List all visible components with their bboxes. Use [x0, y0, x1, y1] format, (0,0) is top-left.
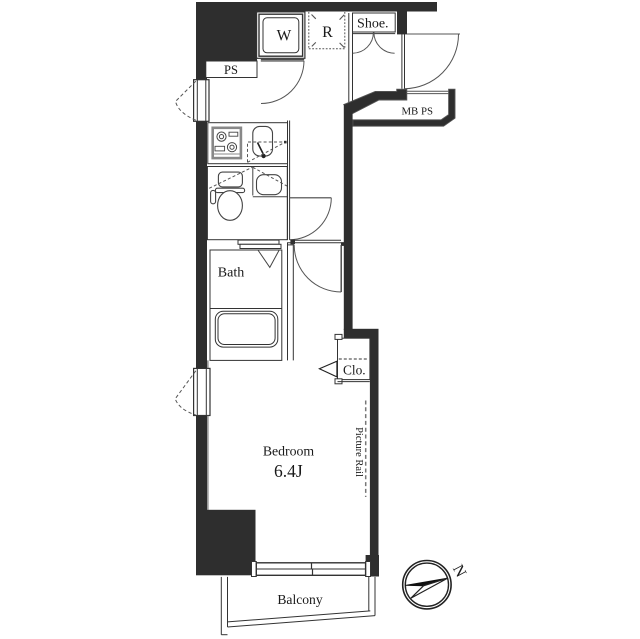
svg-text:Picture Rail: Picture Rail	[353, 427, 364, 477]
svg-text:PS: PS	[224, 63, 238, 77]
svg-text:6.4J: 6.4J	[274, 461, 303, 481]
svg-text:Clo.: Clo.	[343, 363, 366, 378]
svg-text:MB PS: MB PS	[401, 105, 433, 117]
svg-text:Bedroom: Bedroom	[263, 444, 315, 459]
svg-text:Shoe.: Shoe.	[357, 16, 389, 31]
svg-text:R: R	[322, 24, 333, 41]
svg-text:Bath: Bath	[218, 266, 244, 281]
svg-text:Balcony: Balcony	[277, 592, 323, 607]
svg-text:W: W	[277, 28, 292, 45]
